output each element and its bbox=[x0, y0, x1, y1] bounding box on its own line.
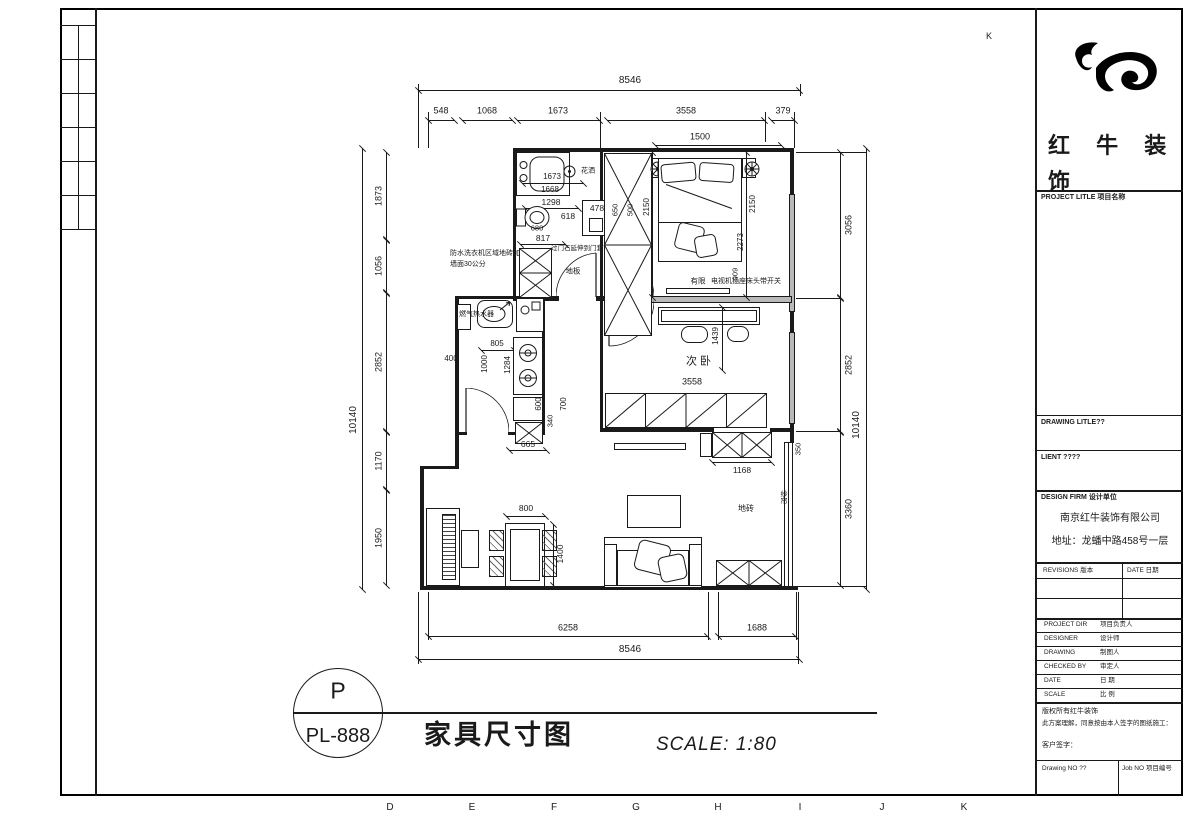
rednull-logo-icon bbox=[1062, 38, 1162, 116]
blanket-line bbox=[658, 222, 742, 223]
dim-line bbox=[509, 450, 547, 451]
label-laundry-1: 防水洗衣机区域地砖加 bbox=[450, 250, 520, 257]
dim-line-v bbox=[386, 152, 387, 240]
window-bedroom bbox=[789, 194, 795, 312]
tb-line bbox=[1037, 618, 1183, 620]
sofa-arm bbox=[689, 544, 702, 586]
chair bbox=[681, 326, 708, 343]
grid-letter: E bbox=[469, 803, 476, 813]
tb-rev-divider bbox=[1122, 562, 1123, 618]
dim-line-v bbox=[746, 152, 747, 298]
label-bed-note: 有限 bbox=[691, 277, 706, 285]
ext-line bbox=[718, 592, 719, 640]
tv-bench bbox=[666, 288, 730, 294]
dim-line-v bbox=[386, 490, 387, 586]
tb-client-sign: 客户签字： bbox=[1042, 742, 1077, 749]
tb-drawing-title-label: DRAWING LITLE?? bbox=[1041, 419, 1105, 426]
dim: 3558 bbox=[682, 378, 702, 387]
dim-line-v bbox=[840, 432, 841, 586]
tv-bench-living bbox=[614, 443, 686, 450]
dim: 805 bbox=[490, 340, 503, 348]
dim: 1673 bbox=[543, 173, 561, 181]
label-wood-floor: 地板 bbox=[566, 267, 581, 275]
balcony-glazing bbox=[784, 442, 785, 588]
dim-line bbox=[428, 636, 708, 637]
tb-row-en: DATE bbox=[1044, 678, 1061, 685]
shower-head-icon bbox=[563, 165, 576, 178]
bubble-letter: P bbox=[330, 680, 345, 703]
drawing-scale: SCALE: 1:80 bbox=[656, 735, 777, 754]
door-kitchen bbox=[465, 388, 509, 432]
ext-line bbox=[600, 112, 601, 148]
dim: 600 bbox=[535, 397, 543, 410]
wall-bedroom2-left bbox=[600, 301, 603, 432]
window-bedroom2 bbox=[789, 332, 795, 424]
tb-design-firm-label: DESIGN FIRM 设计单位 bbox=[1041, 494, 1117, 501]
dim: 1170 bbox=[375, 451, 384, 470]
stove bbox=[513, 337, 543, 395]
tb-date-col-label: DATE 日期 bbox=[1127, 568, 1159, 575]
coffee-table bbox=[627, 495, 681, 528]
dim-right-overall: 10140 bbox=[852, 411, 862, 439]
dim: 400 bbox=[444, 355, 457, 363]
dim: 800 bbox=[519, 504, 533, 513]
ext-line bbox=[428, 592, 429, 640]
ext-line bbox=[796, 152, 866, 153]
tb-project-title-label: PROJECT LITLE 项目名称 bbox=[1041, 194, 1125, 201]
dim: 1668 bbox=[541, 186, 559, 194]
tb-line bbox=[1037, 674, 1183, 675]
tb-line bbox=[1037, 760, 1183, 761]
dim: 500 bbox=[626, 204, 634, 217]
dim-line bbox=[718, 636, 796, 637]
dim-top-overall: 8546 bbox=[619, 76, 641, 86]
tb-row-en: CHECKED BY bbox=[1044, 664, 1086, 671]
dim: 650 bbox=[611, 204, 619, 217]
label-laundry-2: 墙面30公分 bbox=[450, 261, 486, 268]
dim-line-v bbox=[386, 240, 387, 293]
ext-line bbox=[794, 112, 795, 148]
label-tv-note: 电视机插座床头带开关 bbox=[711, 278, 781, 285]
drawing-title: 家具尺寸图 bbox=[424, 722, 574, 749]
balcony-glazing bbox=[792, 442, 793, 588]
niche-cabinet-small bbox=[700, 433, 712, 457]
tb-drawing-no: Drawing NO ?? bbox=[1042, 766, 1086, 773]
tb-divider bbox=[1037, 190, 1183, 192]
dim: 1168 bbox=[733, 466, 751, 475]
dim-line bbox=[517, 120, 600, 121]
wall-kitchen-south bbox=[455, 432, 467, 435]
pillow bbox=[660, 162, 697, 184]
tb-divider bbox=[1037, 490, 1183, 492]
ext-line bbox=[428, 112, 429, 148]
ext-line bbox=[418, 592, 419, 664]
grid-letter: F bbox=[551, 803, 557, 813]
tb-row-en: PROJECT DIR bbox=[1044, 622, 1087, 629]
ext-line bbox=[796, 586, 866, 587]
grid-letter: I bbox=[799, 803, 802, 813]
tb-client-label: LIENT ???? bbox=[1041, 454, 1080, 461]
dim-bottom-overall: 8546 bbox=[619, 645, 641, 655]
tb-line bbox=[1037, 688, 1183, 689]
dim: 1688 bbox=[747, 624, 767, 633]
grid-letter: J bbox=[880, 803, 885, 813]
side-cabinet bbox=[461, 530, 479, 568]
balcony-cabinets bbox=[716, 560, 782, 586]
dim-line-v bbox=[840, 152, 841, 298]
tb-row-cn: 审定人 bbox=[1100, 664, 1120, 671]
wall-right bbox=[790, 312, 794, 332]
wall-kitchen-top bbox=[455, 296, 517, 299]
tb-divider bbox=[1037, 562, 1183, 564]
tb-copyright2: 此方案理解，同意按由本人签字的图纸施工： bbox=[1042, 719, 1178, 728]
tb-row-en: SCALE bbox=[1044, 692, 1065, 699]
dim: 1284 bbox=[504, 356, 512, 374]
dim: 1000 bbox=[481, 355, 489, 373]
shoe-cabinet-hatch bbox=[442, 514, 456, 580]
ext-line bbox=[798, 592, 799, 664]
tb-line bbox=[1037, 598, 1183, 599]
niche-cabinets bbox=[712, 432, 772, 458]
tb-address: 地址：龙蟠中路458号一层 bbox=[1052, 537, 1169, 547]
tb-row-cn: 项目负责人 bbox=[1100, 622, 1133, 629]
dim: 3558 bbox=[676, 107, 696, 116]
label-tile-floor: 地砖 bbox=[738, 505, 754, 513]
ext-line bbox=[418, 84, 419, 148]
wall-entry-step bbox=[420, 466, 458, 469]
tb-row-en: DRAWING bbox=[1044, 650, 1075, 657]
bed-cushion bbox=[693, 233, 718, 258]
dim-line-v bbox=[652, 152, 653, 298]
dim: 817 bbox=[536, 234, 550, 243]
dim: 1673 bbox=[548, 107, 568, 116]
dim-line bbox=[771, 120, 795, 121]
label-threshold: 过门石延伸到门套下 bbox=[551, 246, 610, 253]
tb-line bbox=[1037, 702, 1183, 704]
dim: 3056 bbox=[845, 215, 854, 235]
frame-titleblock-line bbox=[1035, 8, 1037, 796]
niche-inner bbox=[589, 218, 603, 232]
dim: 478 bbox=[590, 204, 604, 213]
title-underline bbox=[293, 712, 877, 714]
room-label-second-bedroom: 次卧 bbox=[686, 357, 714, 368]
wall-bedroom2-south bbox=[600, 428, 714, 432]
dim-line-v bbox=[840, 298, 841, 432]
dim-line-v bbox=[386, 293, 387, 432]
dim: 1950 bbox=[375, 528, 384, 548]
wall-right bbox=[790, 148, 794, 194]
dim-line-v bbox=[386, 432, 387, 490]
wall-left bbox=[420, 466, 424, 590]
tb-company: 南京红牛装饰有限公司 bbox=[1060, 514, 1160, 524]
dim-bed-width: 1500 bbox=[690, 133, 710, 142]
dim: 2150 bbox=[749, 195, 757, 213]
dim-line bbox=[712, 462, 772, 463]
dim-line bbox=[428, 120, 455, 121]
frame-left-strip-line bbox=[95, 8, 97, 796]
pillow bbox=[698, 162, 734, 183]
laundry-riser bbox=[519, 248, 552, 298]
grid-letter: D bbox=[386, 803, 393, 813]
tb-line bbox=[1037, 646, 1183, 647]
cad-sheet: { "frame": { "top_letter": "K", "bottom_… bbox=[0, 0, 1200, 824]
dim: 548 bbox=[433, 107, 448, 116]
tb-copyright1: 版权所有红牛装饰 bbox=[1042, 708, 1098, 715]
tb-row-en: DESIGNER bbox=[1044, 636, 1078, 643]
dim-line bbox=[418, 659, 800, 660]
tb-row-cn: 制图人 bbox=[1100, 650, 1120, 657]
sofa-cushion bbox=[657, 552, 689, 583]
tb-divider bbox=[1037, 415, 1183, 416]
dim: 2852 bbox=[845, 355, 854, 375]
dining-chair bbox=[489, 530, 504, 551]
dim-line-v bbox=[722, 307, 723, 371]
dim-left-overall: 10140 bbox=[349, 406, 359, 434]
dim: 1400 bbox=[556, 545, 565, 564]
dim-line-v bbox=[866, 148, 867, 590]
tb-divider bbox=[1037, 450, 1183, 451]
label-curtain: 纱帘 bbox=[780, 490, 787, 504]
dim: 1056 bbox=[375, 256, 384, 276]
dim: 6258 bbox=[558, 624, 578, 633]
ext-line bbox=[796, 431, 840, 432]
dim: 618 bbox=[561, 212, 575, 221]
tb-job-no: Job NO 项目编号 bbox=[1122, 766, 1172, 773]
tb-line bbox=[1037, 578, 1183, 579]
dim: 2273 bbox=[737, 233, 745, 251]
bubble-number: PL-888 bbox=[306, 726, 371, 746]
balcony-glazing bbox=[788, 442, 789, 588]
dim: 1439 bbox=[712, 327, 720, 345]
desk-inner bbox=[661, 310, 757, 322]
ext-line bbox=[765, 112, 766, 142]
dim-line bbox=[522, 183, 584, 184]
wall-right bbox=[790, 424, 794, 442]
dim: 3360 bbox=[845, 499, 854, 519]
dim: 1068 bbox=[477, 107, 497, 116]
wardrobe-hatched bbox=[605, 393, 767, 428]
strip-cell-divider bbox=[78, 25, 79, 229]
tb-row-cn: 设计师 bbox=[1100, 636, 1120, 643]
dim: 2852 bbox=[375, 352, 384, 372]
dim: 665 bbox=[521, 440, 535, 449]
wardrobe bbox=[604, 153, 652, 336]
dim: 2150 bbox=[643, 198, 651, 216]
label-shower: 花洒 bbox=[581, 168, 595, 175]
tb-line bbox=[1037, 660, 1183, 661]
grid-letter: G bbox=[632, 803, 640, 813]
sofa-arm bbox=[604, 544, 617, 586]
dim-line bbox=[462, 120, 513, 121]
kitchen-sink bbox=[516, 298, 544, 332]
wall-poche bbox=[651, 296, 792, 303]
label-water-heater: 燃气热水器 bbox=[459, 311, 494, 318]
dim-line bbox=[481, 350, 515, 351]
dim-line bbox=[418, 90, 800, 91]
dining-chair bbox=[489, 556, 504, 577]
dim: 700 bbox=[560, 397, 568, 410]
tb-bottom-divider bbox=[1118, 760, 1119, 796]
grid-letter-top: K bbox=[986, 32, 992, 41]
dim-line bbox=[607, 120, 765, 121]
tb-row-cn: 日 期 bbox=[1100, 678, 1115, 685]
ext-line bbox=[800, 84, 801, 96]
strip-cell-line bbox=[60, 229, 95, 230]
dim-line bbox=[506, 516, 546, 517]
dim: 680 bbox=[531, 224, 544, 232]
dim: 1873 bbox=[375, 186, 384, 206]
dim: 350 bbox=[794, 443, 802, 456]
grid-letter: H bbox=[714, 803, 721, 813]
tb-line bbox=[1037, 632, 1183, 633]
tb-row-cn: 比 例 bbox=[1100, 692, 1115, 699]
dim-line bbox=[655, 145, 782, 146]
tb-revisions-label: REVISIONS 版本 bbox=[1043, 568, 1093, 575]
wall-bedroom2-south bbox=[770, 428, 794, 432]
dim-line-v bbox=[362, 148, 363, 590]
ext-line bbox=[796, 592, 797, 640]
dining-table-inner bbox=[510, 529, 540, 581]
grid-letter: K bbox=[961, 803, 968, 813]
dim: 379 bbox=[775, 107, 790, 116]
dim: 340 bbox=[546, 415, 554, 428]
ext-line bbox=[708, 592, 709, 640]
ext-line bbox=[796, 298, 840, 299]
chair bbox=[727, 326, 749, 342]
